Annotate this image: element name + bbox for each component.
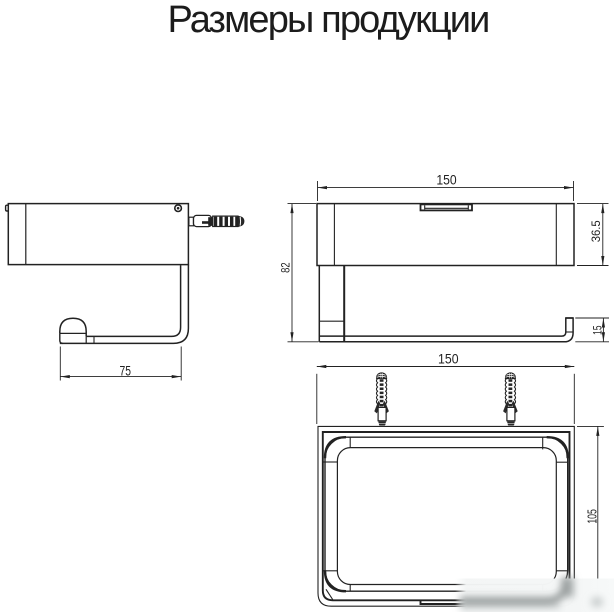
svg-text:15: 15: [591, 325, 605, 335]
svg-text:150: 150: [436, 172, 456, 187]
svg-text:150: 150: [438, 350, 459, 366]
svg-text:Размеры продукции: Размеры продукции: [167, 0, 488, 41]
svg-text:36.5: 36.5: [589, 220, 603, 242]
svg-text:75: 75: [120, 363, 132, 379]
svg-text:82: 82: [278, 262, 292, 273]
svg-text:105: 105: [584, 509, 599, 524]
